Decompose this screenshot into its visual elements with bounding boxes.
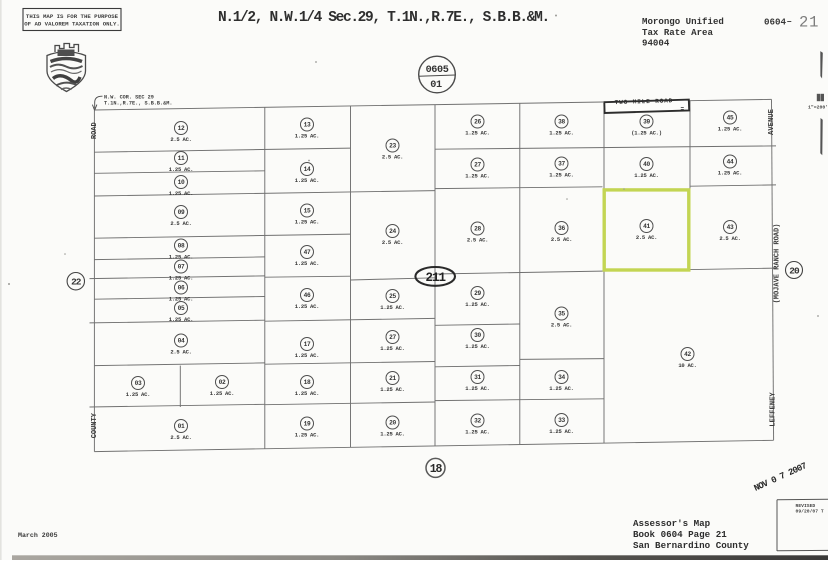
svg-text:37: 37 xyxy=(558,161,565,168)
svg-text:1.25 AC.: 1.25 AC. xyxy=(465,301,489,308)
svg-text:San Bernardino County: San Bernardino County xyxy=(633,540,749,551)
svg-text:OF AD VALOREM TAXATION ONLY.: OF AD VALOREM TAXATION ONLY. xyxy=(24,20,120,27)
svg-text:1.25 AC.: 1.25 AC. xyxy=(465,343,489,350)
svg-text:12: 12 xyxy=(178,125,185,132)
svg-text:(1.25 AC.): (1.25 AC.) xyxy=(631,130,662,137)
svg-text:2.5 AC.: 2.5 AC. xyxy=(382,154,403,161)
svg-text:18: 18 xyxy=(430,463,443,476)
svg-text:07: 07 xyxy=(178,264,185,271)
svg-text:1.25 AC.: 1.25 AC. xyxy=(465,385,489,392)
svg-text:1.25 AC.: 1.25 AC. xyxy=(295,303,319,310)
svg-text:THIS MAP IS FOR THE PURPOSE: THIS MAP IS FOR THE PURPOSE xyxy=(26,13,119,20)
svg-text:Tax Rate Area: Tax Rate Area xyxy=(642,27,713,38)
svg-text:1.25 AC.: 1.25 AC. xyxy=(465,130,489,137)
svg-text:1.25 AC.: 1.25 AC. xyxy=(465,173,489,180)
svg-text:2.5 AC.: 2.5 AC. xyxy=(467,237,488,244)
svg-text:1.25 AC.: 1.25 AC. xyxy=(169,275,193,282)
svg-text:LEFFENEY: LEFFENEY xyxy=(770,392,778,427)
svg-text:1.25 AC.: 1.25 AC. xyxy=(380,304,404,311)
svg-text:=: = xyxy=(681,105,685,112)
svg-text:27: 27 xyxy=(389,334,396,341)
svg-text:29: 29 xyxy=(474,290,481,297)
svg-text:1.25 AC.: 1.25 AC. xyxy=(380,431,404,438)
svg-text:28: 28 xyxy=(474,226,481,233)
svg-text:35: 35 xyxy=(558,311,565,318)
svg-text:42: 42 xyxy=(684,351,691,358)
svg-text:(MOJAVE RANCH ROAD): (MOJAVE RANCH ROAD) xyxy=(774,224,782,304)
svg-text:10 AC.: 10 AC. xyxy=(678,362,696,369)
svg-text:2.5 AC.: 2.5 AC. xyxy=(636,234,657,241)
svg-text:18: 18 xyxy=(304,379,311,386)
svg-text:March 2005: March 2005 xyxy=(18,532,58,539)
svg-text:21: 21 xyxy=(389,375,396,382)
svg-text:31: 31 xyxy=(474,374,481,381)
svg-text:30: 30 xyxy=(474,332,481,339)
svg-text:40: 40 xyxy=(643,161,650,168)
svg-text:94004: 94004 xyxy=(642,38,670,49)
svg-text:1.25 AC.: 1.25 AC. xyxy=(210,390,234,397)
svg-text:1.25 AC.: 1.25 AC. xyxy=(295,390,319,397)
svg-text:27: 27 xyxy=(474,162,481,169)
svg-text:14: 14 xyxy=(304,166,311,173)
svg-text:10: 10 xyxy=(178,179,185,186)
svg-text:04: 04 xyxy=(178,338,185,345)
svg-text:11: 11 xyxy=(178,155,185,162)
svg-text:34: 34 xyxy=(558,374,565,381)
svg-text:0605: 0605 xyxy=(426,65,449,76)
svg-text:32: 32 xyxy=(474,418,481,425)
svg-text:2.5 AC.: 2.5 AC. xyxy=(551,236,572,243)
svg-text:1.25 AC.: 1.25 AC. xyxy=(380,386,404,393)
svg-text:2.5 AC.: 2.5 AC. xyxy=(551,322,572,329)
svg-text:1.25 AC.: 1.25 AC. xyxy=(295,219,319,226)
svg-text:01: 01 xyxy=(178,423,185,430)
svg-text:1.25 AC.: 1.25 AC. xyxy=(169,316,193,323)
svg-text:41: 41 xyxy=(643,223,650,230)
svg-text:20: 20 xyxy=(789,265,800,276)
svg-text:43: 43 xyxy=(727,224,734,231)
svg-text:1.25 AC.: 1.25 AC. xyxy=(549,172,573,179)
svg-text:19: 19 xyxy=(304,421,311,428)
svg-text:09: 09 xyxy=(178,209,185,216)
svg-text:1.25 AC.: 1.25 AC. xyxy=(169,254,193,261)
svg-text:AVENUE: AVENUE xyxy=(768,108,776,135)
svg-text:2.5 AC.: 2.5 AC. xyxy=(170,220,191,227)
svg-text:24: 24 xyxy=(389,228,396,235)
svg-text:Book 0604 Page 21: Book 0604 Page 21 xyxy=(633,529,727,540)
svg-text:Morongo Unified: Morongo Unified xyxy=(642,16,724,27)
svg-text:1.25 AC.: 1.25 AC. xyxy=(549,385,573,392)
svg-text:N.1/2, N.W.1/4 Sec.29, T.1N.,R: N.1/2, N.W.1/4 Sec.29, T.1N.,R.7E., S.B.… xyxy=(218,10,549,26)
svg-text:1.25 AC.: 1.25 AC. xyxy=(295,260,319,267)
svg-text:39: 39 xyxy=(643,119,650,126)
svg-text:46: 46 xyxy=(304,292,311,299)
svg-text:1.25 AC.: 1.25 AC. xyxy=(126,391,150,398)
svg-text:08: 08 xyxy=(178,243,185,250)
svg-text:47: 47 xyxy=(304,249,311,256)
svg-text:17: 17 xyxy=(304,341,311,348)
svg-text:1.25 AC.: 1.25 AC. xyxy=(169,166,193,173)
svg-text:–: – xyxy=(787,16,793,27)
svg-text:1.25 AC.: 1.25 AC. xyxy=(549,130,573,137)
svg-text:T.1N.,R.7E., S.B.B.&M.: T.1N.,R.7E., S.B.B.&M. xyxy=(104,100,173,106)
svg-text:0604: 0604 xyxy=(764,17,787,28)
svg-text:1.25 AC.: 1.25 AC. xyxy=(169,190,193,197)
svg-text:15: 15 xyxy=(304,208,311,215)
svg-text:1.25 AC.: 1.25 AC. xyxy=(634,172,658,179)
svg-text:25: 25 xyxy=(389,293,396,300)
svg-text:1.25 AC.: 1.25 AC. xyxy=(295,133,319,140)
svg-text:1.25 AC.: 1.25 AC. xyxy=(718,170,742,177)
svg-text:20: 20 xyxy=(389,420,396,427)
svg-text:21: 21 xyxy=(799,14,819,32)
svg-text:36: 36 xyxy=(558,225,565,232)
svg-text:Assessor's Map: Assessor's Map xyxy=(633,518,711,529)
svg-text:1.25 AC.: 1.25 AC. xyxy=(380,345,404,352)
svg-text:03: 03 xyxy=(135,380,142,387)
svg-text:1"=200': 1"=200' xyxy=(808,105,828,111)
svg-text:38: 38 xyxy=(558,119,565,126)
svg-text:REVISED: REVISED xyxy=(796,503,816,509)
svg-text:1.25 AC.: 1.25 AC. xyxy=(465,429,489,436)
svg-text:05: 05 xyxy=(178,305,185,312)
svg-text:33: 33 xyxy=(558,417,565,424)
svg-text:1.25 AC.: 1.25 AC. xyxy=(295,352,319,359)
svg-text:ROAD: ROAD xyxy=(91,122,99,139)
svg-text:01: 01 xyxy=(430,80,442,91)
svg-text:13: 13 xyxy=(304,122,311,129)
svg-text:1.25 AC.: 1.25 AC. xyxy=(295,177,319,184)
svg-text:1.25 AC.: 1.25 AC. xyxy=(718,126,742,133)
svg-text:2.5 AC.: 2.5 AC. xyxy=(170,434,191,441)
svg-text:09/20/07 T: 09/20/07 T xyxy=(796,509,824,515)
svg-text:211: 211 xyxy=(425,271,445,285)
svg-text:23: 23 xyxy=(389,143,396,150)
svg-text:2.5 AC.: 2.5 AC. xyxy=(719,235,740,242)
svg-text:COUNTY: COUNTY xyxy=(91,412,99,438)
svg-text:22: 22 xyxy=(71,277,82,288)
svg-text:2.5 AC.: 2.5 AC. xyxy=(382,239,403,246)
svg-text:26: 26 xyxy=(474,119,481,126)
svg-text:1.25 AC.: 1.25 AC. xyxy=(295,432,319,439)
svg-text:06: 06 xyxy=(178,285,185,292)
svg-text:1.25 AC.: 1.25 AC. xyxy=(549,428,573,435)
svg-text:44: 44 xyxy=(727,159,734,166)
svg-text:2.5 AC.: 2.5 AC. xyxy=(170,349,191,356)
svg-text:2.5 AC.: 2.5 AC. xyxy=(170,136,191,143)
svg-text:45: 45 xyxy=(727,115,734,122)
svg-text:02: 02 xyxy=(219,379,226,386)
